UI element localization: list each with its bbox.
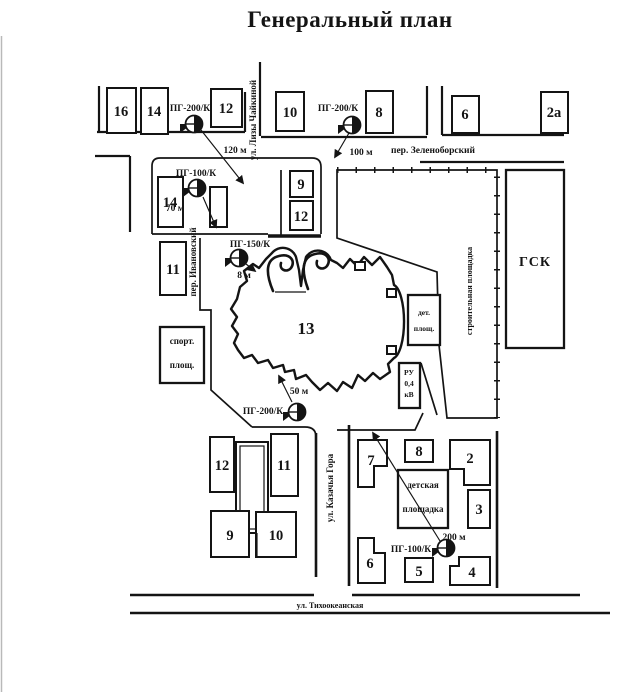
- building-2a-number: 2а: [547, 105, 562, 121]
- building-12-bl-number: 12: [215, 458, 230, 474]
- building-8-br-number: 8: [415, 444, 422, 460]
- hydrant-5-label: ПГ-200/К: [243, 407, 283, 417]
- ru-label-1: РУ: [404, 368, 414, 377]
- construction-site-label: строительная площадка: [465, 247, 474, 335]
- distance-label-3: 70 м: [166, 204, 185, 214]
- hydrant-6-label: ПГ-100/К: [391, 545, 431, 555]
- building-13-annex-2: [387, 289, 396, 297]
- ru-label-2: 0,4: [404, 379, 414, 388]
- playground-label-1: детская: [407, 480, 439, 490]
- street-label-ivanovsky: пер. Ивановский: [188, 227, 198, 296]
- building-small-unlabeled: [210, 187, 227, 227]
- building-7-number: 7: [367, 453, 374, 469]
- building-2-number: 2: [466, 451, 473, 467]
- distance-label-6: 200 м: [442, 533, 466, 543]
- playground-label-2: площадка: [403, 504, 444, 514]
- building-12-top-number: 12: [219, 101, 234, 117]
- hydrant-icon-2: [338, 117, 361, 135]
- ru-label-3: кВ: [404, 390, 413, 399]
- page-title: Генеральный план: [247, 7, 452, 32]
- distance-label-1: 120 м: [223, 146, 247, 156]
- building-13-annex-1: [355, 262, 365, 270]
- det-playground-box: [408, 295, 440, 345]
- building-11-mid-number: 11: [166, 262, 180, 278]
- site-plan-map: Генеральный план строительная площадка 1…: [0, 0, 642, 692]
- hydrant-4-label: ПГ-150/К: [230, 240, 270, 250]
- distance-label-4: 8 м: [237, 271, 251, 281]
- building-8-top-number: 8: [375, 105, 382, 121]
- building-12-mid-number: 12: [294, 209, 309, 225]
- hydrant-icon-3: [183, 180, 206, 198]
- building-6-br-number: 6: [366, 556, 373, 572]
- building-10-bl-number: 10: [269, 528, 284, 544]
- building-3-number: 3: [475, 502, 482, 518]
- hydrant-1-label: ПГ-200/К: [170, 104, 210, 114]
- street-label-chaykina: ул. Лизы Чайкиной: [248, 80, 258, 160]
- det-playground-label-1: дет.: [418, 308, 430, 317]
- street-label-zelenoborsky: пер. Зеленоборский: [391, 145, 476, 156]
- sport-ground-label-2: площ.: [170, 360, 195, 370]
- building-10-number: 10: [283, 105, 298, 121]
- sport-ground-label-1: спорт.: [170, 336, 195, 346]
- hydrant-icon-5: [283, 404, 306, 422]
- hydrant-icon-4: [225, 250, 248, 268]
- det-playground-label-2: площ.: [414, 324, 435, 333]
- building-gsk-label: ГСК: [519, 255, 551, 270]
- street-label-kazachya: ул. Казачья Гора: [325, 453, 335, 522]
- building-11-bl-number: 11: [277, 458, 291, 474]
- distance-label-5: 50 м: [290, 387, 309, 397]
- distance-label-2: 100 м: [349, 148, 373, 158]
- building-13-annex-3: [387, 346, 396, 354]
- building-6-top-number: 6: [461, 107, 468, 123]
- hydrant-icon-1: [180, 116, 203, 134]
- building-4-number: 4: [468, 565, 475, 581]
- building-13-number: 13: [298, 319, 315, 338]
- building-14-top-number: 14: [147, 104, 162, 120]
- building-16-number: 16: [114, 104, 129, 120]
- building-5-number: 5: [415, 564, 422, 580]
- hydrant-3-label: ПГ-100/К: [176, 169, 216, 179]
- building-13-outline: [231, 248, 404, 391]
- building-9-bl-number: 9: [226, 528, 233, 544]
- building-9-mid-number: 9: [297, 177, 304, 193]
- hydrant-2-label: ПГ-200/К: [318, 104, 358, 114]
- playground-box: [398, 470, 448, 528]
- street-label-tikhookeanskaya: ул. Тихоокеанская: [297, 601, 364, 610]
